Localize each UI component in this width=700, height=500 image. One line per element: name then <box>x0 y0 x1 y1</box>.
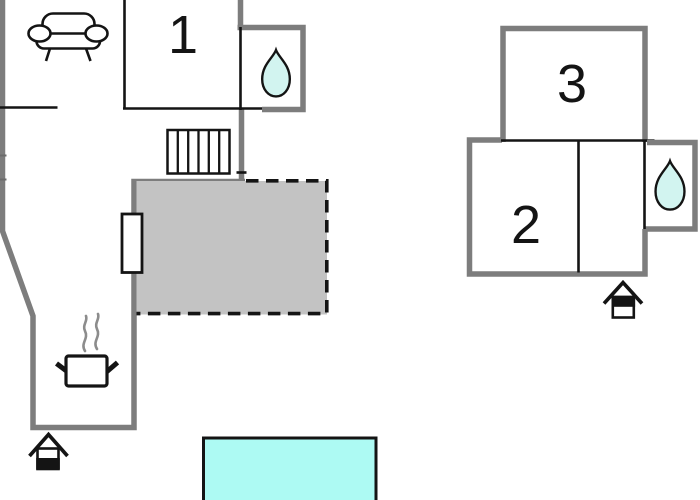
living-room <box>0 14 108 108</box>
pool <box>204 438 377 500</box>
terrace-area <box>137 181 328 315</box>
room-1-label: 1 <box>168 5 198 65</box>
terrace <box>122 173 327 315</box>
water-drop-icon <box>656 161 685 210</box>
steam-icon <box>83 314 98 351</box>
bathroom-1 <box>238 27 304 110</box>
cooking-pot-icon <box>57 356 118 386</box>
room-1: 1 <box>123 0 266 109</box>
room-2-label: 2 <box>511 195 541 255</box>
bathroom-2 <box>645 142 696 230</box>
floor-plan-canvas: 1 <box>0 0 700 500</box>
pool-water <box>204 438 377 500</box>
floor-plan: 1 <box>0 0 700 500</box>
room-3: 3 <box>503 29 645 143</box>
room-2: 2 <box>470 140 655 274</box>
kitchen <box>57 314 118 386</box>
entrance-icon-right <box>604 283 642 318</box>
room-3-label: 3 <box>557 54 587 114</box>
water-drop-icon <box>262 50 290 96</box>
stairs-icon <box>168 130 230 174</box>
right-building: 3 2 <box>470 29 696 318</box>
terrace-door <box>122 214 142 273</box>
exterior-wall <box>470 140 646 274</box>
sofa-icon <box>29 14 108 62</box>
left-building: 1 <box>0 0 327 470</box>
entrance-icon-left <box>30 435 68 470</box>
